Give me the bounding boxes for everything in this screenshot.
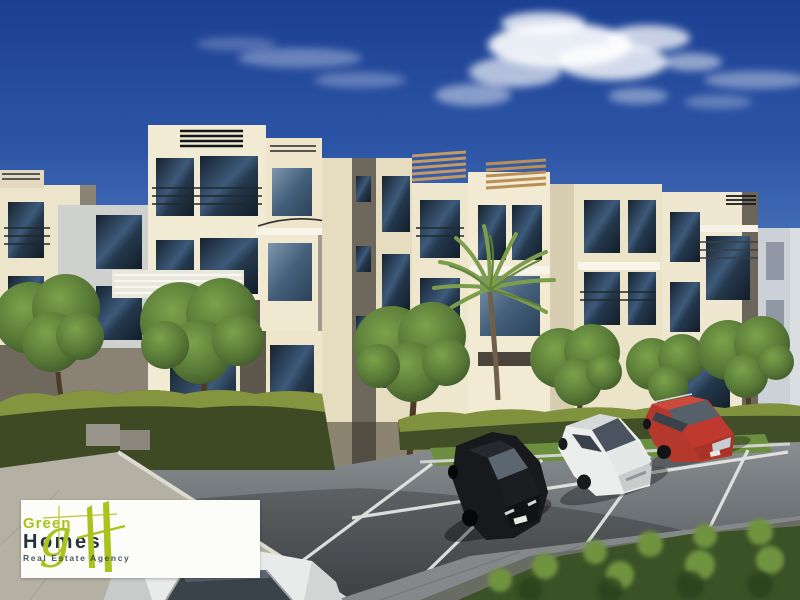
watermark-logo: g Green Homes Real Estate Agency — [21, 500, 260, 578]
hedge-row-left — [0, 390, 335, 470]
real-estate-render-image: g Green Homes Real Estate Agency — [0, 0, 800, 600]
logo-monogram-crossbar — [77, 526, 125, 538]
logo-tagline: Real Estate Agency — [23, 554, 130, 563]
logo-monogram: g — [29, 500, 125, 574]
protruding-balcony — [256, 219, 332, 331]
